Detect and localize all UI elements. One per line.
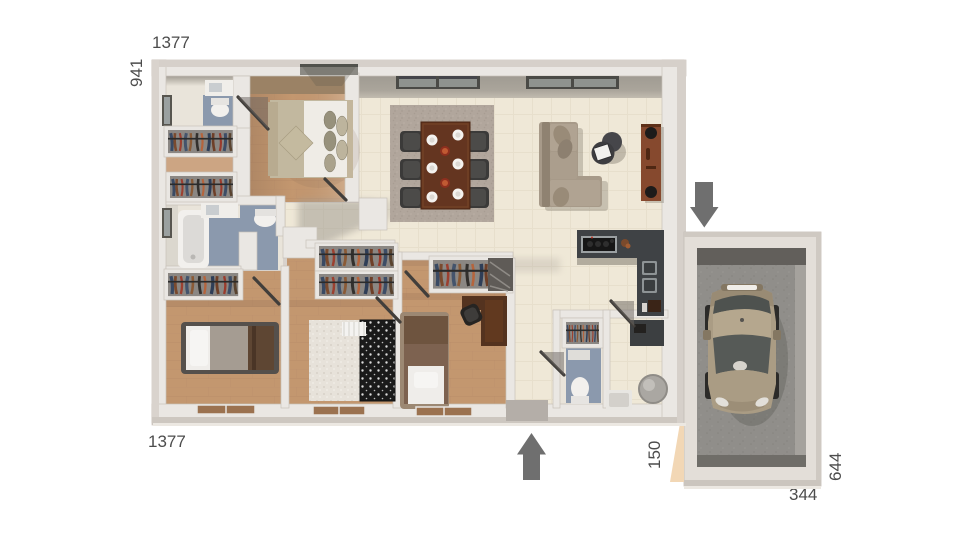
svg-text:150: 150: [645, 441, 664, 469]
svg-text:644: 644: [826, 453, 845, 481]
svg-text:1377: 1377: [152, 33, 190, 52]
svg-text:941: 941: [127, 59, 146, 87]
svg-text:1377: 1377: [148, 432, 186, 451]
